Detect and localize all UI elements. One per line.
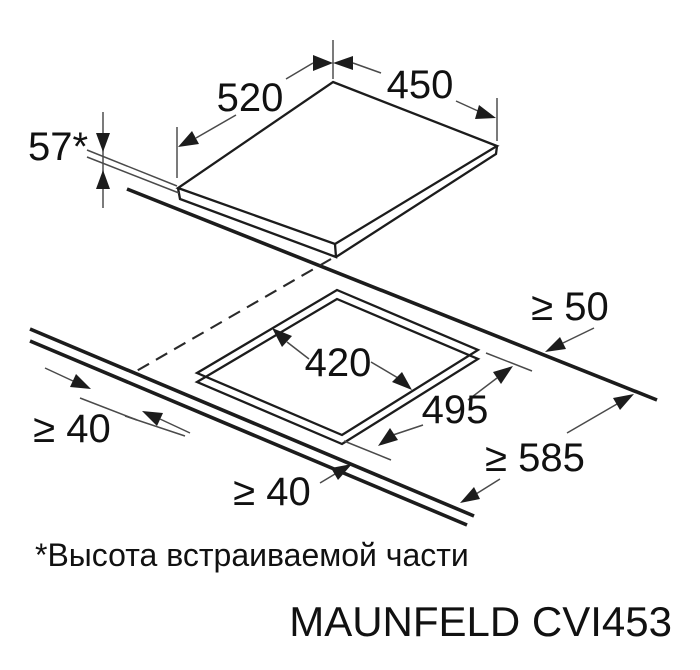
arrow-up-right-icon xyxy=(493,366,513,384)
installation-diagram-page: 520 450 57* 420 xyxy=(0,0,700,670)
hob-depth-label: 450 xyxy=(387,63,454,107)
hob-rim-left xyxy=(178,188,336,257)
dimension-hob-width: 520 xyxy=(177,40,333,178)
hob-width-label: 520 xyxy=(217,76,284,120)
cutout-depth-label: 420 xyxy=(305,341,372,385)
worktop-depth-label: ≥ 585 xyxy=(485,436,585,480)
rear-clearance-label: ≥ 50 xyxy=(531,285,609,329)
leader-line xyxy=(567,404,617,433)
arrow-down-left-icon xyxy=(378,428,398,446)
dimension-cutout-depth: 420 xyxy=(272,328,412,390)
dimension-front-clearance: ≥ 40 xyxy=(233,464,352,514)
cutout-width-label: 495 xyxy=(422,388,489,432)
arrow-down-left-icon xyxy=(545,337,566,352)
dimension-rear-clearance: ≥ 50 xyxy=(531,285,609,352)
dimension-hob-height: 57* xyxy=(28,112,179,208)
arrow-up-icon xyxy=(96,170,110,189)
arrow-down-left-icon xyxy=(178,131,199,147)
arrow-down-left-icon xyxy=(460,487,480,503)
leader-line xyxy=(320,474,335,483)
hob-rim-right xyxy=(336,146,497,257)
arrow-right-icon xyxy=(313,55,333,71)
arrow-down-right-icon xyxy=(70,374,91,389)
brand-model-text: MAUNFELD CVI453 xyxy=(289,598,672,645)
dimension-hob-depth: 450 xyxy=(333,56,497,141)
leader-line xyxy=(286,63,313,79)
leader-line xyxy=(371,362,398,378)
leader-line xyxy=(476,479,500,494)
leader-line xyxy=(563,328,594,343)
arrow-up-right-icon xyxy=(613,394,634,410)
leader-line xyxy=(353,63,381,73)
leader-line xyxy=(393,425,423,435)
arrow-down-right-icon xyxy=(392,372,412,390)
projection-dashed-line xyxy=(133,259,331,373)
arrow-down-icon xyxy=(96,133,110,152)
front-clearance-label: ≥ 40 xyxy=(233,470,311,514)
leader-line xyxy=(456,101,478,111)
leader-line xyxy=(45,368,73,381)
arrow-up-left-icon xyxy=(142,411,163,426)
arrow-down-right-icon xyxy=(475,105,496,119)
hob-height-label: 57* xyxy=(28,125,88,169)
leader-line xyxy=(160,419,190,433)
arrow-up-right-icon xyxy=(331,464,352,480)
side-clearance-label: ≥ 40 xyxy=(33,407,111,451)
arrow-left-icon xyxy=(333,56,353,70)
installation-diagram: 520 450 57* 420 xyxy=(0,0,700,670)
footnote-text: *Высота встраиваемой части xyxy=(35,537,469,573)
dimension-side-clearance: ≥ 40 xyxy=(33,368,190,451)
